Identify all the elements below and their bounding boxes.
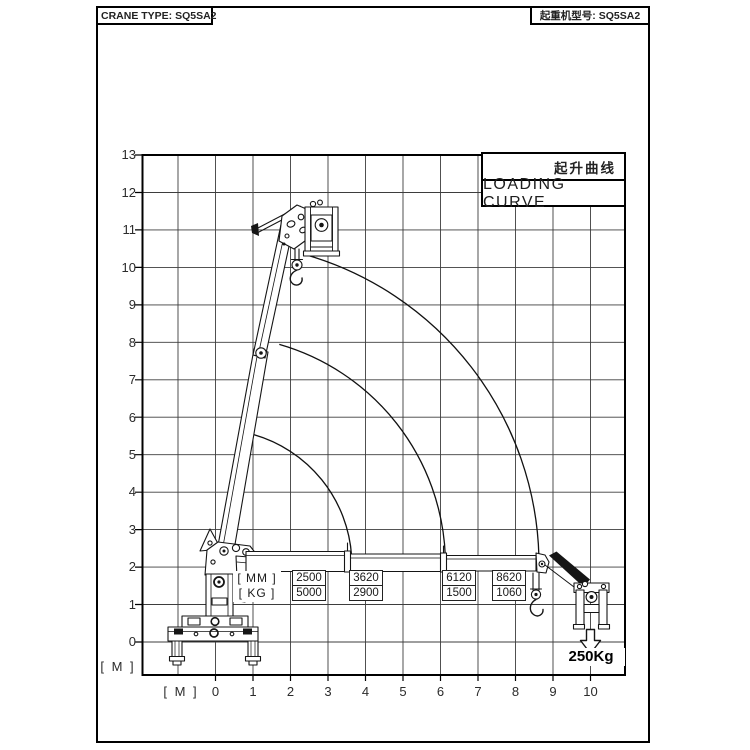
y-tick-label: 5 <box>106 447 136 463</box>
raised-boom <box>217 200 340 556</box>
loading-curve-arcs <box>253 255 539 557</box>
jib-winch <box>545 552 610 630</box>
x-tick-label: 3 <box>313 684 343 700</box>
y-tick-label: 4 <box>106 484 136 500</box>
y-tick-label: 0 <box>106 634 136 650</box>
mm-value-box: 3620 <box>349 570 383 586</box>
outrigger-beam <box>168 627 261 665</box>
kg-value-box: 2900 <box>349 585 383 601</box>
y-tick-label: 11 <box>106 222 136 238</box>
telescopic-boom <box>246 543 536 572</box>
drawing-sheet: CRANE TYPE: SQ5SA2 起重机型号: SQ5SA2 起升曲线 LO… <box>0 0 750 750</box>
x-tick-label: 8 <box>501 684 531 700</box>
top-winch-box <box>304 200 340 256</box>
legend-title-en: LOADING CURVE <box>483 181 624 206</box>
y-tick-label: 7 <box>106 372 136 388</box>
x-tick-label: 9 <box>538 684 568 700</box>
mm-value-box: 2500 <box>292 570 326 586</box>
max-load-label: 250Kg <box>557 648 625 666</box>
x-tick-label: 6 <box>426 684 456 700</box>
x-tick-label: 1 <box>238 684 268 700</box>
y-tick-label: 2 <box>106 559 136 575</box>
y-tick-label: 9 <box>106 297 136 313</box>
x-tick-label: 0 <box>201 684 231 700</box>
axis-ticks <box>135 155 591 681</box>
arc-boom-3620mm <box>253 435 351 557</box>
legend-box: 起升曲线 LOADING CURVE <box>481 152 626 207</box>
crane-type-label: CRANE TYPE: SQ5SA2 <box>101 10 217 22</box>
crane-model-box: 起重机型号: SQ5SA2 <box>530 6 650 25</box>
x-tick-label: 2 <box>276 684 306 700</box>
y-tick-label: 10 <box>106 260 136 276</box>
y-tick-label: 6 <box>106 410 136 426</box>
x-tick-label: 10 <box>576 684 606 700</box>
kg-value-box: 1500 <box>442 585 476 601</box>
x-tick-label: 7 <box>463 684 493 700</box>
mm-value-box: 6120 <box>442 570 476 586</box>
kg-value-box: 5000 <box>292 585 326 601</box>
raised-hook <box>290 249 302 285</box>
kg-row-label: [ KG ] <box>233 586 281 602</box>
y-tick-label: 13 <box>106 147 136 163</box>
arc-boom-6120mm <box>279 344 445 556</box>
crane-type-box: CRANE TYPE: SQ5SA2 <box>96 6 213 25</box>
y-tick-label: 3 <box>106 522 136 538</box>
mm-value-box: 8620 <box>492 570 526 586</box>
x-tick-label: 4 <box>351 684 381 700</box>
y-axis-unit-label: [ M ] <box>94 659 142 675</box>
crane-model-label: 起重机型号: SQ5SA2 <box>540 8 640 23</box>
kg-value-box: 1060 <box>492 585 526 601</box>
y-tick-label: 1 <box>106 597 136 613</box>
y-tick-label: 8 <box>106 335 136 351</box>
x-tick-label: 5 <box>388 684 418 700</box>
x-axis-unit-label: [ M ] <box>157 684 205 700</box>
y-tick-label: 12 <box>106 185 136 201</box>
mm-row-label: [ MM ] <box>233 571 281 587</box>
